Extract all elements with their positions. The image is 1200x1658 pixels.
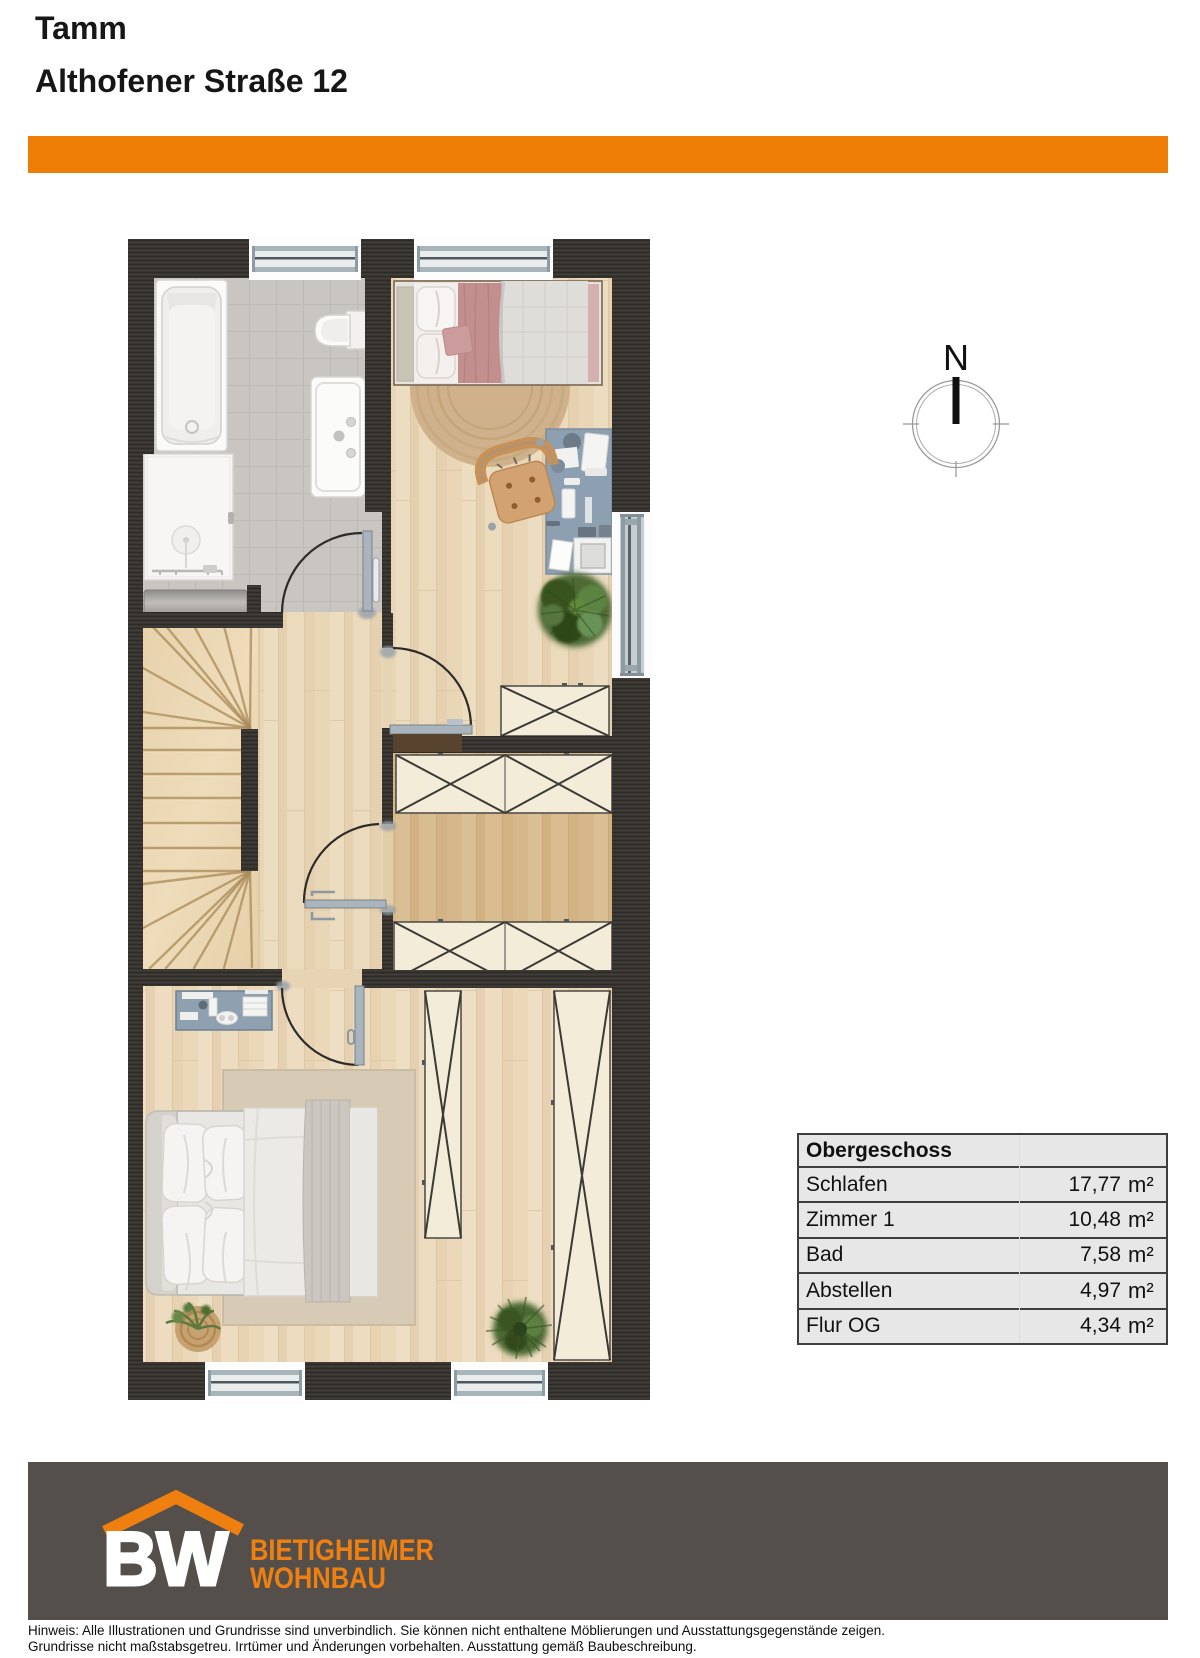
svg-text:N: N — [943, 337, 969, 378]
svg-text:WOHNBAU: WOHNBAU — [250, 1561, 386, 1594]
svg-text:BW: BW — [103, 1517, 228, 1602]
